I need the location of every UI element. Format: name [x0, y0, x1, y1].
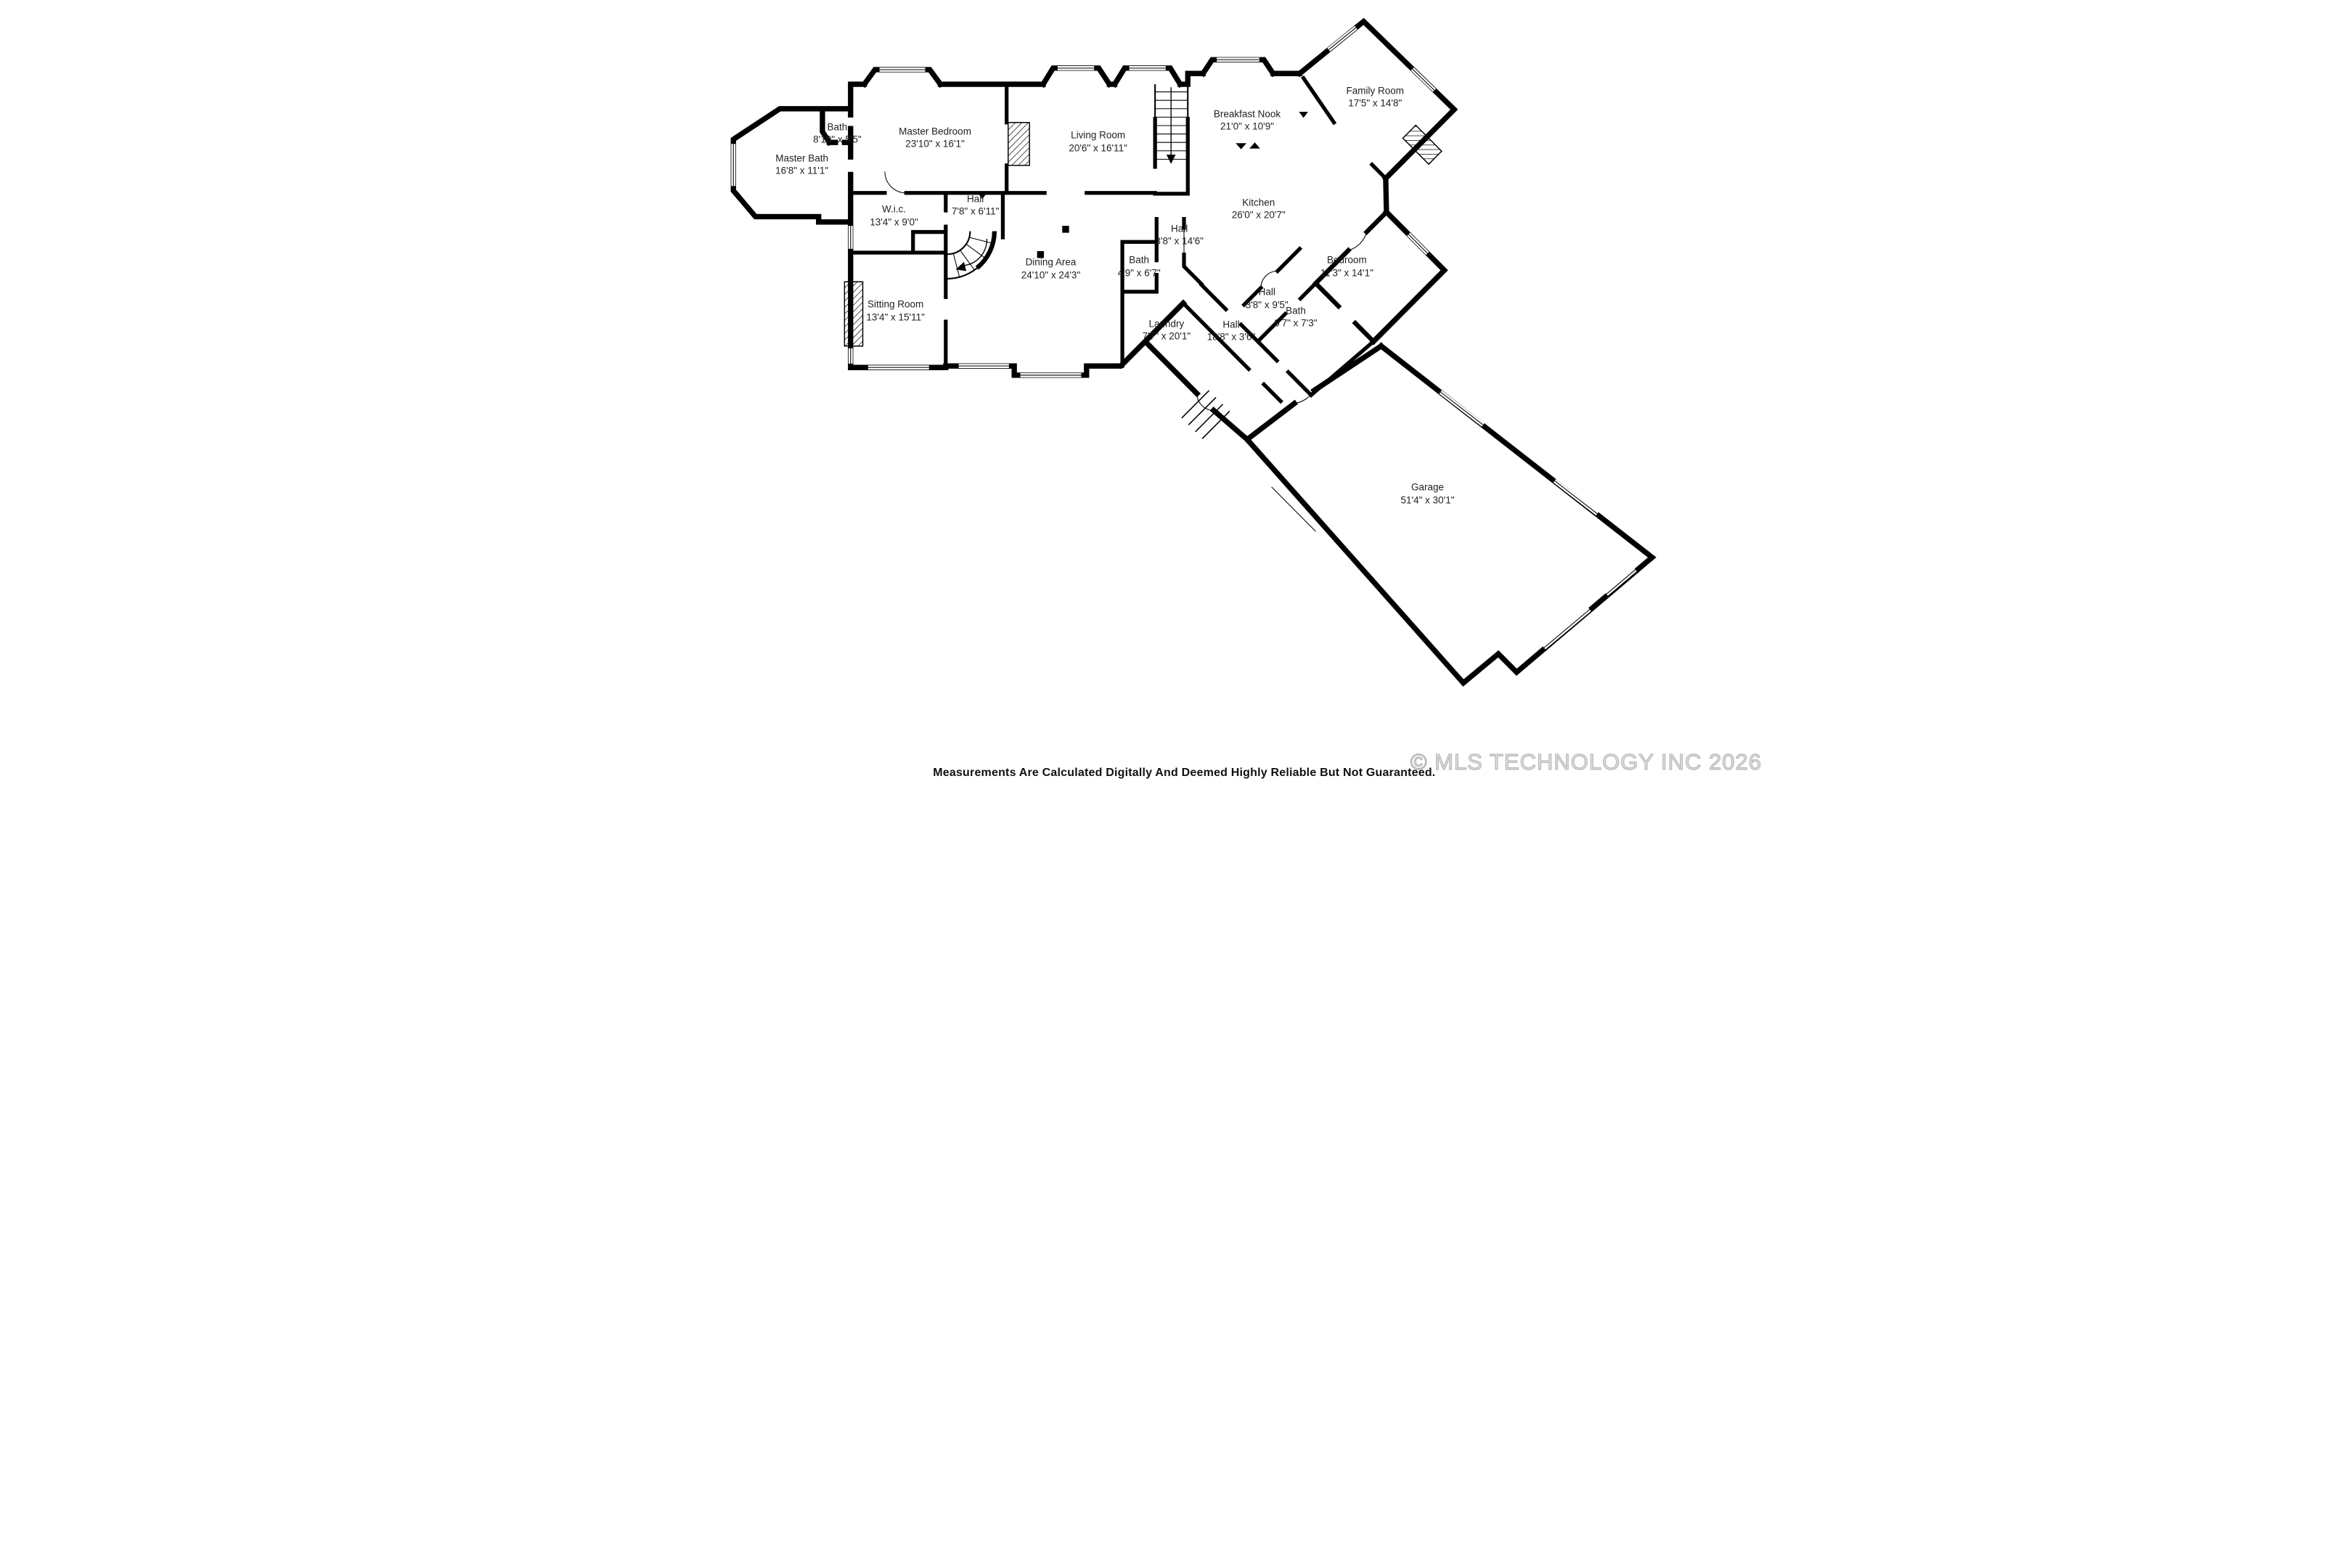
sitting-room-fireplace — [844, 282, 862, 346]
fireplaces — [844, 123, 1442, 346]
curved-stair-arrow — [955, 262, 966, 271]
living-room-fireplace — [1008, 123, 1029, 166]
dining-column — [1037, 251, 1044, 258]
measurement-disclaimer: Measurements Are Calculated Digitally An… — [933, 767, 1435, 780]
exterior-walls — [733, 22, 1652, 683]
straight-staircase — [1155, 73, 1188, 163]
bedroom-walls — [1315, 212, 1387, 341]
dining-column — [1062, 226, 1069, 232]
curved-staircase — [947, 232, 995, 279]
interior-walls — [851, 78, 1386, 401]
windows — [733, 28, 1636, 648]
floor-plan-page: Master Bath16'8" x 11'1" Bath8'10" x 5'5… — [588, 0, 1764, 784]
mls-watermark: © MLS TECHNOLOGY INC 2026 — [1410, 749, 1762, 775]
floor-plan-drawing — [588, 0, 1764, 784]
